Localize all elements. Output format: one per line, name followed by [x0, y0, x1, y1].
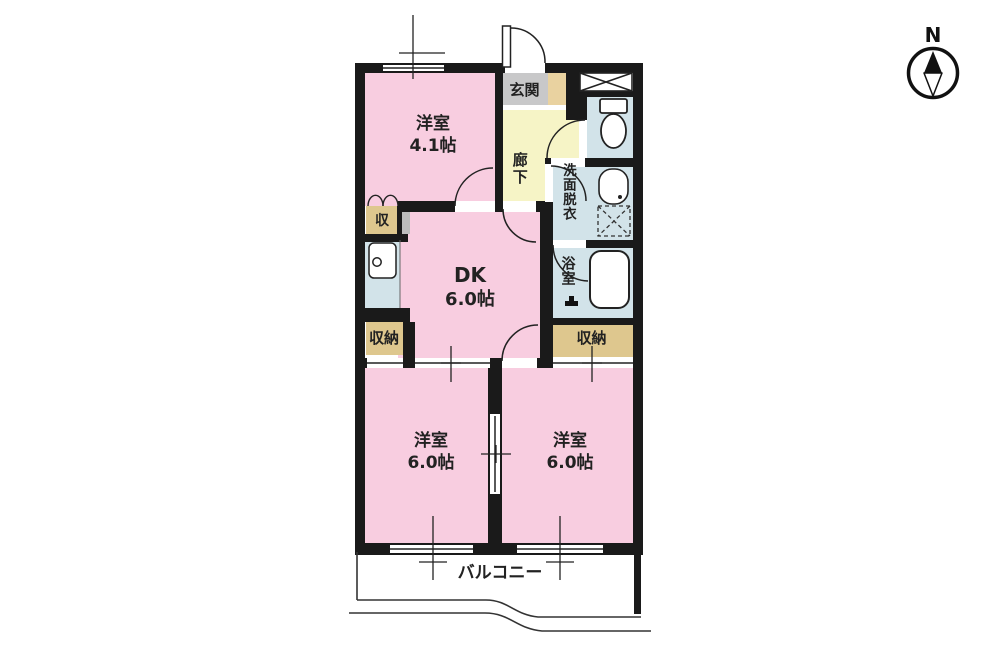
wall-below-counter [355, 308, 410, 322]
bedroom-right-size: 6.0帖 [520, 452, 620, 474]
wall-partition-top [488, 368, 502, 412]
closet-top-label: 収 [366, 212, 398, 230]
door-opening-washroom [545, 164, 553, 202]
wall-under-shoebox [578, 91, 633, 97]
hallway-floor-3 [566, 120, 579, 160]
entrance-step [548, 73, 566, 105]
door-opening-bedroom-top [455, 201, 495, 212]
toilet-floor [587, 97, 633, 160]
bedroom-top-label: 洋室 4.1帖 [383, 113, 483, 158]
bedroom-right-name: 洋室 [520, 430, 620, 452]
wall-dk-right [540, 201, 553, 358]
wall-bath-closet [545, 318, 633, 325]
compass-north-label: N [920, 22, 946, 48]
window-bedroom-top [383, 63, 444, 73]
entrance-label: 玄関 [501, 81, 548, 101]
closet-right-label: 収納 [568, 329, 615, 349]
washroom-label: 洗面脱衣 [558, 163, 576, 243]
bedroom-left-size: 6.0帖 [381, 452, 481, 474]
window-bedroom-right [517, 543, 603, 555]
slider-dk-bedroom-left [415, 358, 490, 368]
dk-label: DK 6.0帖 [420, 262, 520, 312]
door-opening-toilet [579, 120, 587, 158]
door-opening-bedroom-right [502, 358, 537, 368]
partition-sliding-panel [488, 412, 502, 496]
closet-left-label: 収納 [362, 329, 406, 349]
floorplan: 洋室 4.1帖 玄関 廊下 洗面脱衣 浴室 DK 6.0帖 収 収納 収納 洋室… [0, 0, 1000, 650]
bedroom-left-name: 洋室 [381, 430, 481, 452]
shoe-cabinet-icon [580, 73, 632, 91]
wall-partition-bottom [488, 496, 502, 543]
compass-icon [909, 49, 958, 98]
slider-closet-left [367, 358, 403, 368]
balcony-label: バルコニー [430, 562, 570, 584]
bedroom-left-label: 洋室 6.0帖 [381, 430, 481, 475]
bedroom-top-size: 4.1帖 [383, 135, 483, 157]
entrance-door-opening [505, 63, 545, 73]
wall-outer-right [633, 63, 643, 555]
slider-closet-right [553, 358, 633, 368]
window-bedroom-left [390, 543, 473, 555]
bathroom-label: 浴室 [558, 256, 576, 296]
dk-name: DK [420, 262, 520, 288]
door-pocket [402, 212, 410, 234]
hallway-label: 廊下 [509, 152, 529, 206]
dk-size: 6.0帖 [420, 288, 520, 312]
bedroom-right-label: 洋室 6.0帖 [520, 430, 620, 475]
kitchen-counter [365, 240, 400, 308]
wall-wash-bath-right [586, 240, 633, 248]
bedroom-top-name: 洋室 [383, 113, 483, 135]
hallway-floor-2 [545, 110, 566, 160]
balcony-right-post [634, 552, 641, 614]
